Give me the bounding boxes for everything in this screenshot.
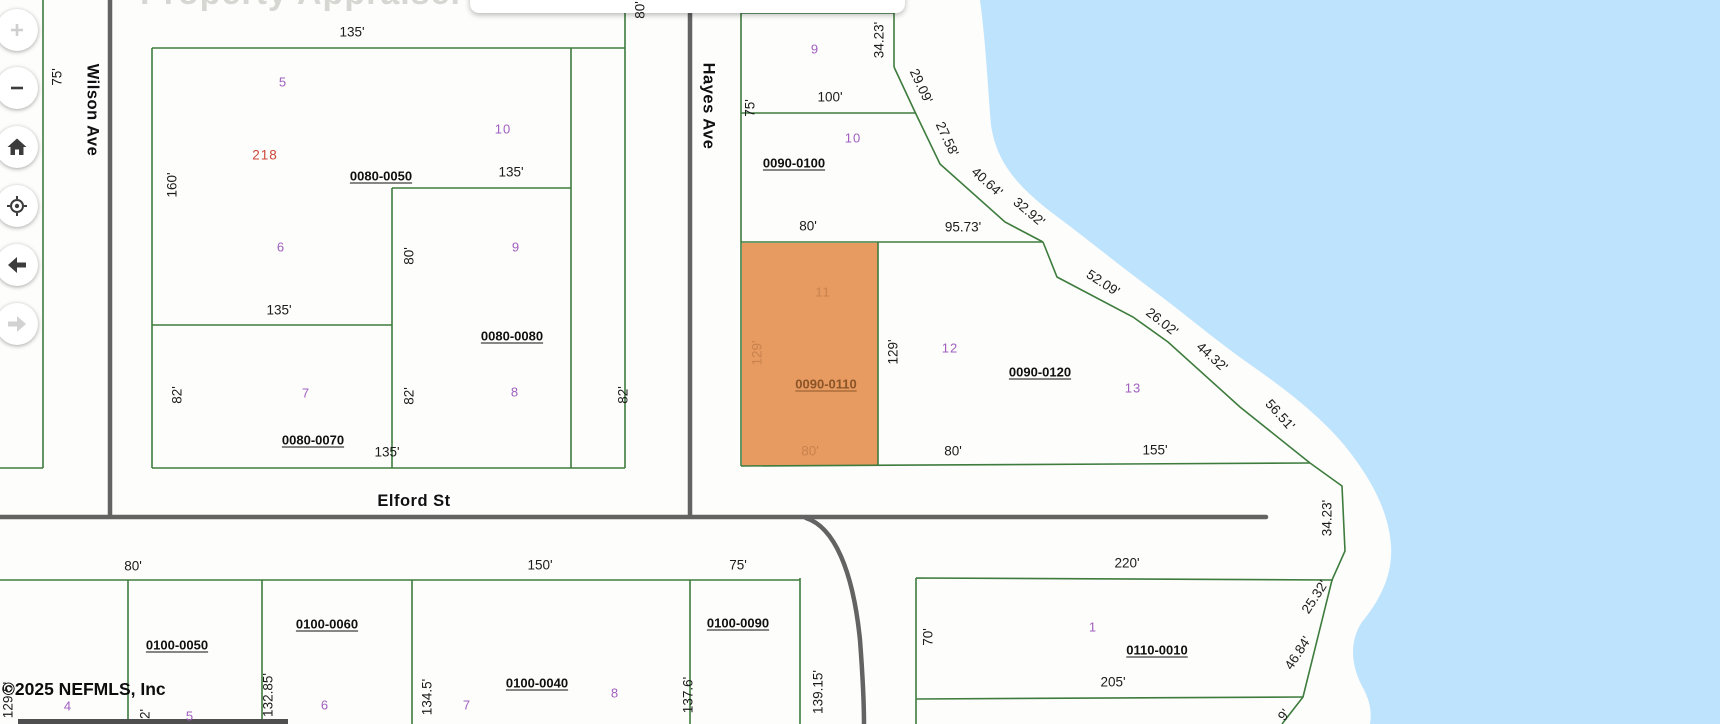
- dimension-label: 139.15': [811, 670, 825, 714]
- dimension-label: 135': [498, 165, 523, 179]
- lot-number-label: 1: [1089, 621, 1097, 634]
- parcel-id-label[interactable]: 0090-0100: [763, 157, 825, 170]
- popup-cutoff-panel[interactable]: [470, 0, 905, 13]
- locate-crosshair-icon: [6, 195, 28, 217]
- dimension-label: 129': [886, 339, 900, 364]
- lot-number-label: 7: [302, 387, 310, 400]
- back-arrow-icon: [6, 254, 28, 276]
- dimension-label: 205': [1100, 675, 1125, 689]
- dimension-label: 134.5': [420, 679, 434, 715]
- dimension-label: 137.6': [681, 677, 695, 713]
- dimension-label: 82': [170, 386, 184, 404]
- parcel-id-label[interactable]: 0080-0070: [282, 434, 344, 447]
- dimension-label: 135': [266, 303, 291, 317]
- forward-arrow-icon: [6, 313, 28, 335]
- lot-number-label: 8: [511, 386, 519, 399]
- dimension-label: 95.73': [945, 220, 981, 234]
- dimension-label: 220': [1114, 556, 1139, 570]
- road-bottom-stub: [18, 719, 288, 724]
- dimension-label: 70': [921, 628, 935, 646]
- address-number-label: 218: [252, 148, 278, 162]
- lake-water: [980, 0, 1720, 724]
- watermark-property-appraiser: Property Appraiser: [140, 0, 465, 13]
- dimension-label: 150': [527, 558, 552, 572]
- lot-number-label: 9: [512, 241, 520, 254]
- map-canvas[interactable]: Property Appraiser ©2025 NEFMLS, Inc 135…: [0, 0, 1720, 724]
- parcel-id-label[interactable]: 0090-0120: [1009, 366, 1071, 379]
- parcel-id-label[interactable]: 0080-0080: [481, 330, 543, 343]
- street-label: Wilson Ave: [84, 64, 101, 157]
- lot-number-label: 5: [186, 710, 194, 723]
- dimension-label: 80': [124, 559, 142, 573]
- minus-icon: [7, 78, 27, 98]
- dimension-label: 80': [633, 1, 647, 19]
- parcel-id-label[interactable]: 0100-0060: [296, 618, 358, 631]
- lot-number-label: 10: [845, 132, 861, 145]
- dimension-label: 34.23': [1320, 500, 1334, 536]
- dimension-label: 129.5': [1, 682, 15, 718]
- copyright-notice: ©2025 NEFMLS, Inc: [2, 679, 166, 700]
- lot-number-label: 13: [1125, 382, 1141, 395]
- dimension-label: 75': [729, 558, 747, 572]
- lot-number-label: 8: [611, 687, 619, 700]
- dimension-label: 129': [750, 340, 764, 365]
- lot-number-label: 6: [277, 241, 285, 254]
- lot-number-label: 9: [811, 43, 819, 56]
- dimension-label: 80': [801, 444, 819, 458]
- dimension-label: 80': [944, 444, 962, 458]
- dimension-label: 160': [165, 172, 179, 197]
- parcel-id-label[interactable]: 0110-0010: [1126, 644, 1187, 657]
- dimension-label: 2': [138, 709, 152, 719]
- dimension-label: 75': [743, 99, 757, 117]
- dimension-label: 155': [1142, 443, 1167, 457]
- parcel-id-label[interactable]: 0100-0090: [707, 617, 769, 630]
- parcel-id-label[interactable]: 0090-0110: [795, 378, 856, 391]
- dimension-label: 75': [50, 68, 64, 86]
- parcel-map-graphics: [0, 0, 1720, 724]
- street-label: Hayes Ave: [700, 63, 717, 150]
- dimension-label: 82': [616, 386, 630, 404]
- street-label: Elford St: [377, 493, 450, 510]
- home-icon: [6, 136, 28, 158]
- parcel-id-label[interactable]: 0080-0050: [350, 170, 412, 183]
- parcel-id-label[interactable]: 0100-0050: [146, 639, 208, 652]
- lot-number-label: 4: [64, 700, 72, 713]
- dimension-label: 80': [799, 219, 817, 233]
- plus-icon: [7, 20, 27, 40]
- lot-number-label: 6: [321, 699, 329, 712]
- dimension-label: 135': [374, 445, 399, 459]
- dimension-label: 34.23': [872, 22, 886, 58]
- lot-number-label: 12: [942, 342, 958, 355]
- dimension-label: 132.85': [261, 673, 275, 717]
- lot-number-label: 11: [815, 286, 831, 299]
- lot-number-label: 5: [279, 76, 287, 89]
- parcel-id-label[interactable]: 0100-0040: [506, 677, 568, 690]
- lot-number-label: 7: [463, 699, 471, 712]
- lot-number-label: 10: [495, 123, 511, 136]
- dimension-label: 100': [817, 90, 842, 104]
- dimension-label: 82': [402, 387, 416, 405]
- dimension-label: 80': [402, 247, 416, 265]
- dimension-label: 135': [339, 25, 364, 39]
